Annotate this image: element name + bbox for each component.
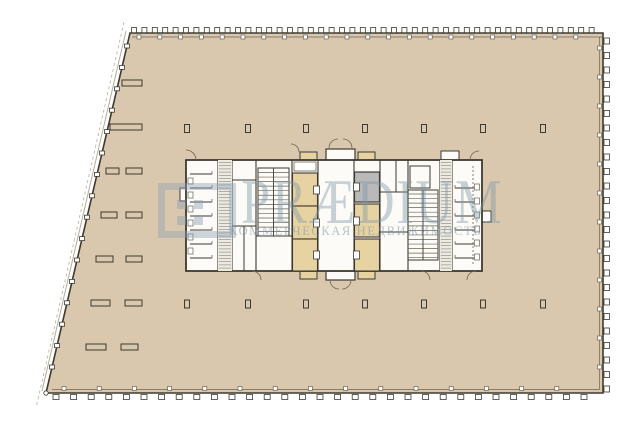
elevator-door: [354, 183, 360, 191]
core-right-niche: [482, 211, 491, 222]
column: [541, 300, 546, 308]
column: [363, 125, 368, 133]
duct-shaft-left: [218, 160, 232, 271]
elevator-bank-a: [293, 162, 320, 271]
column-bar: [125, 300, 142, 306]
elevator-bank-b: [354, 172, 380, 271]
column-bar: [126, 256, 142, 262]
column: [541, 125, 546, 133]
column: [422, 300, 427, 308]
column: [422, 125, 427, 133]
floor-plan-canvas: PRÆDIUM КОММЕРЧЕСКАЯ НЕДВИЖИМОСТЬ: [0, 0, 641, 426]
elevator-door: [354, 251, 360, 259]
column: [363, 300, 368, 308]
column: [481, 300, 486, 308]
column: [246, 300, 251, 308]
column-bar: [101, 212, 117, 218]
column-bar: [126, 168, 142, 174]
column-bar: [106, 168, 119, 174]
duct-shaft-right: [440, 160, 452, 271]
column-bar: [91, 300, 110, 306]
floor-plan-drawing: [0, 0, 641, 426]
column-bar: [96, 256, 113, 262]
column: [481, 125, 486, 133]
column-bar: [122, 80, 142, 86]
elevator-door: [314, 219, 320, 227]
elevator-door: [314, 186, 320, 194]
column: [246, 125, 251, 133]
shaft-bump: [300, 271, 317, 279]
elevator-door: [314, 251, 320, 259]
column: [185, 125, 190, 133]
column: [304, 300, 309, 308]
shaft-bump: [358, 271, 375, 279]
column-bar: [86, 344, 106, 350]
elevator-door: [354, 217, 360, 225]
column: [304, 125, 309, 133]
column: [185, 300, 190, 308]
column-bar: [110, 124, 142, 130]
column-bar: [121, 344, 138, 350]
entry-vestibule-bottom: [326, 271, 355, 280]
column-bar: [126, 212, 142, 218]
